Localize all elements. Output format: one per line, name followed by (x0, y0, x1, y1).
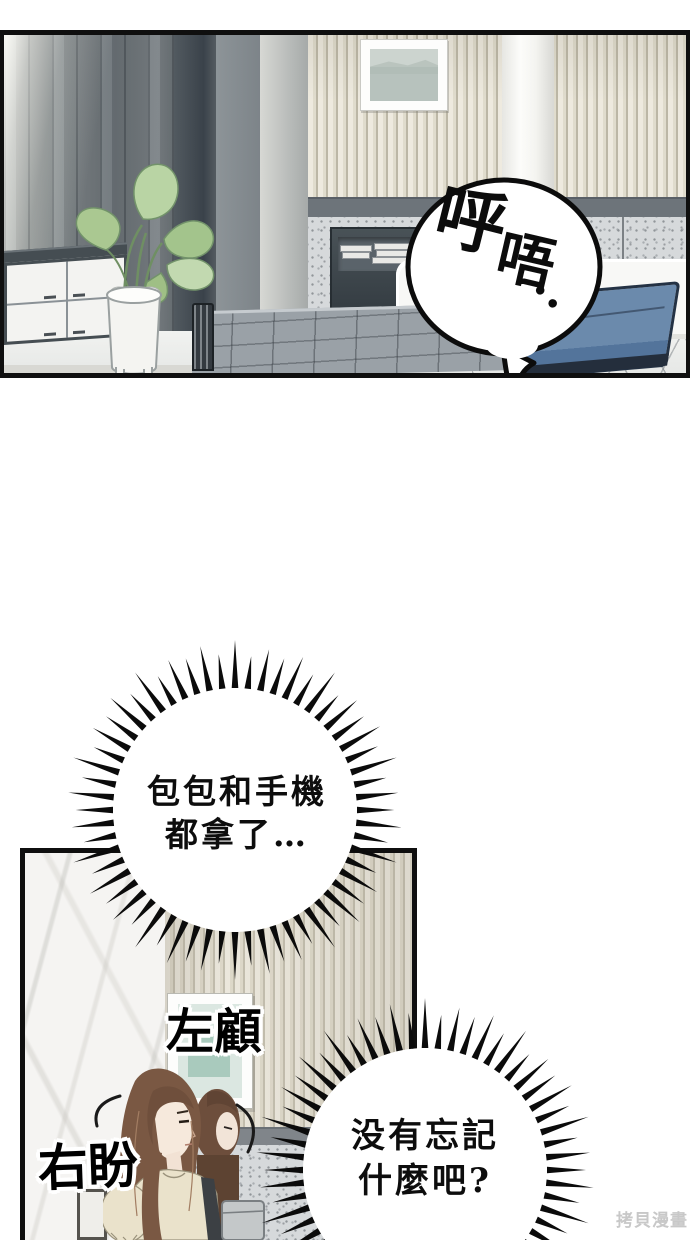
thought-2-line-1: 没有忘記 (285, 1114, 565, 1159)
picture-art (370, 49, 438, 101)
wall-picture-frame (360, 39, 448, 111)
panel-living-room (0, 30, 690, 378)
sfx-look-right: 右盼 (37, 1140, 139, 1193)
thought-bubble-2-text: 没有忘記 什麼吧? (285, 1114, 565, 1204)
thought-1-line-1: 包包和手機 (95, 770, 379, 813)
thought-1-line-2: 都拿了… (95, 813, 379, 856)
thought-2-line-2: 什麼吧? (285, 1159, 565, 1204)
sfx-look-left: 左顧 (166, 1008, 262, 1056)
comic-page: 呼 唔 .. (0, 0, 690, 1240)
site-watermark: 拷貝漫畫 (616, 1206, 688, 1231)
suitcase (192, 303, 214, 371)
thought-bubble-1-text: 包包和手機 都拿了… (95, 770, 379, 856)
